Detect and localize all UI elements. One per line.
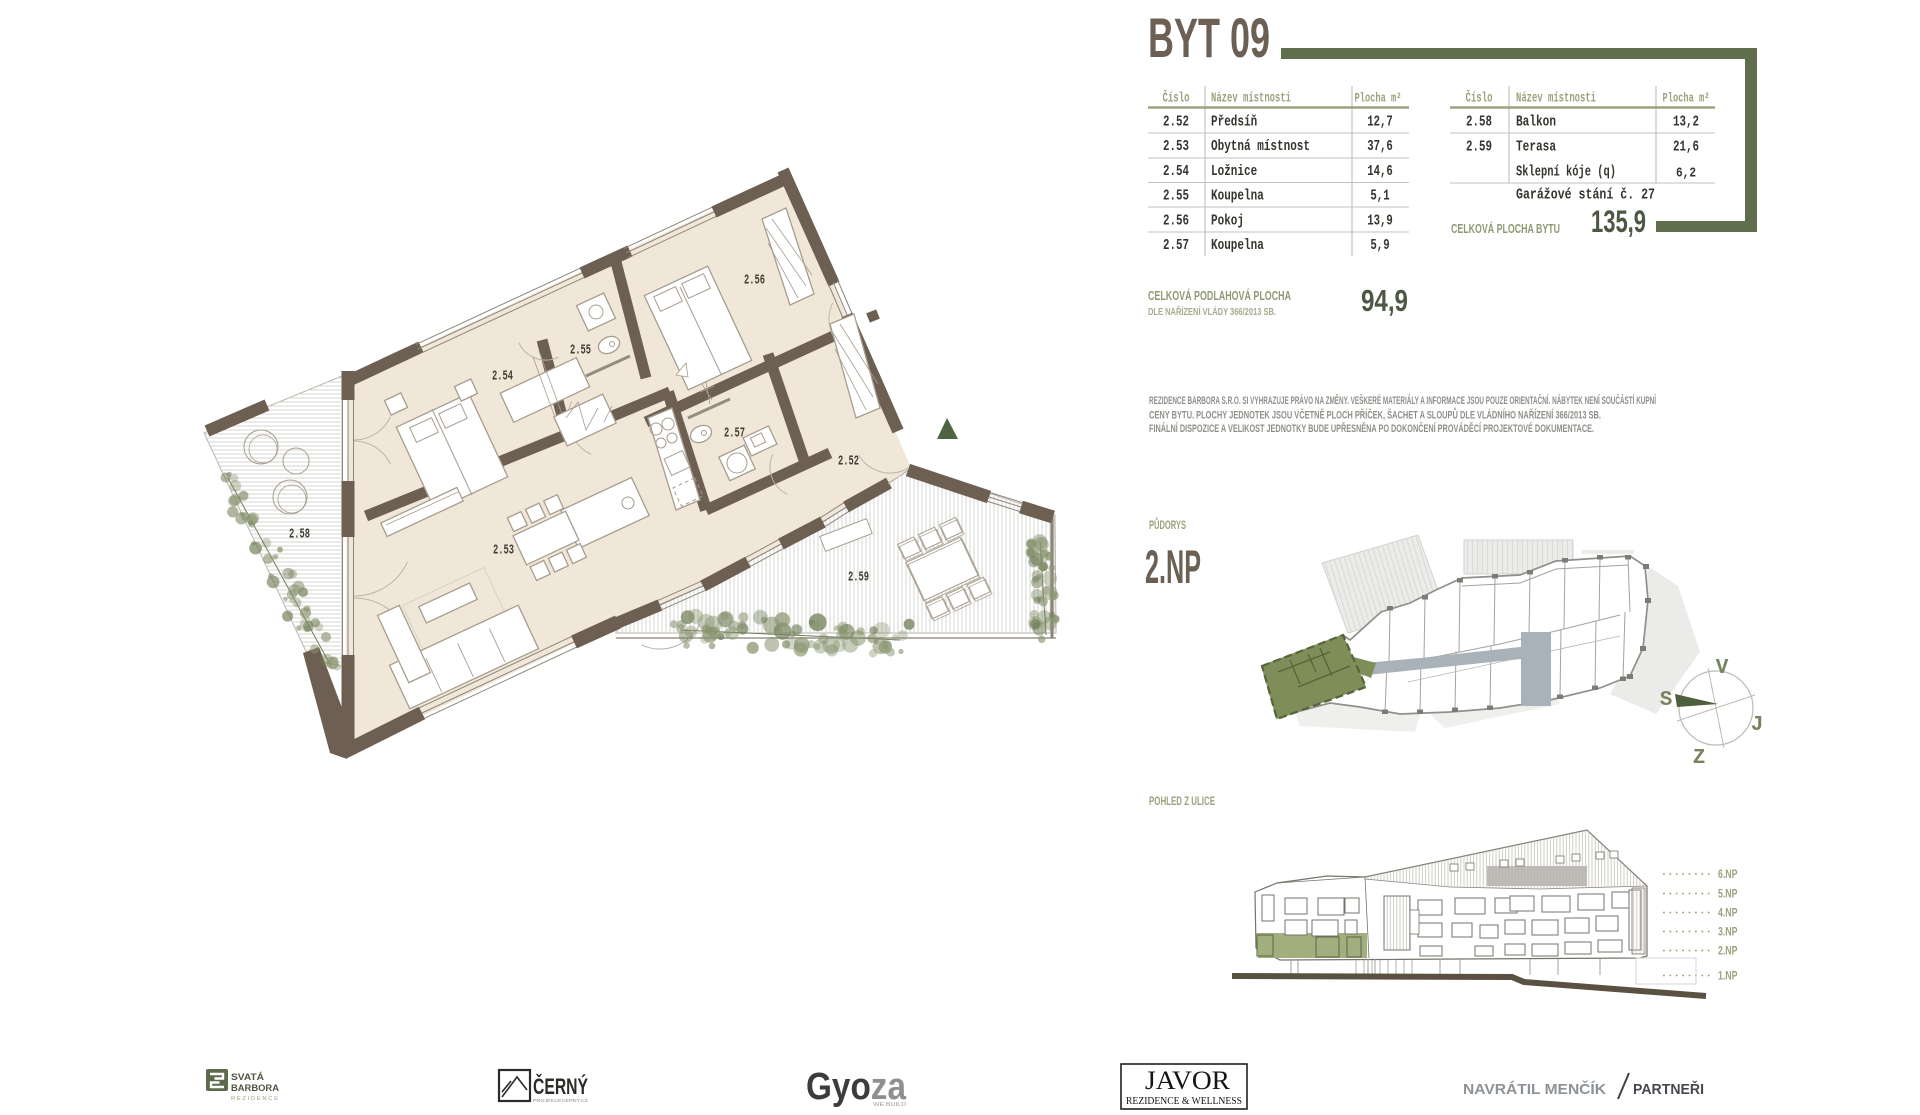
svg-text:135,9: 135,9 <box>1591 203 1646 239</box>
svg-text:BYT 09: BYT 09 <box>1148 6 1270 69</box>
svg-text:Obytná místnost: Obytná místnost <box>1211 138 1310 155</box>
svg-text:CELKOVÁ PODLAHOVÁ PLOCHA: CELKOVÁ PODLAHOVÁ PLOCHA <box>1148 288 1291 303</box>
svg-text:Z: Z <box>1693 747 1706 770</box>
svg-text:Plocha m²: Plocha m² <box>1355 91 1402 106</box>
svg-text:SVATÁ: SVATÁ <box>231 1072 264 1083</box>
svg-text:2.NP: 2.NP <box>1718 946 1738 958</box>
svg-text:Číslo: Číslo <box>1163 89 1190 107</box>
svg-text:2.58: 2.58 <box>289 527 310 543</box>
svg-text:13,9: 13,9 <box>1367 212 1393 229</box>
svg-text:2.59: 2.59 <box>1466 139 1492 156</box>
svg-text:2.53: 2.53 <box>1163 138 1189 155</box>
svg-text:Ložnice: Ložnice <box>1211 163 1257 180</box>
svg-text:Plocha m²: Plocha m² <box>1663 91 1710 106</box>
svg-text:14,6: 14,6 <box>1367 163 1393 180</box>
svg-text:2.59: 2.59 <box>848 570 869 586</box>
svg-text:S: S <box>1660 689 1673 712</box>
svg-text:Terasa: Terasa <box>1516 139 1556 156</box>
svg-text:1.NP: 1.NP <box>1718 971 1738 983</box>
svg-text:R E Z I D E N C E: R E Z I D E N C E <box>231 1096 279 1102</box>
svg-text:3.NP: 3.NP <box>1718 927 1738 939</box>
svg-text:2.56: 2.56 <box>1163 212 1189 229</box>
svg-text:JAVOR: JAVOR <box>1145 1066 1231 1095</box>
svg-text:REZIDENCE BARBORA S.R.O. SI VY: REZIDENCE BARBORA S.R.O. SI VYHRAZUJE PR… <box>1149 394 1657 407</box>
svg-text:PARTNEŘI: PARTNEŘI <box>1633 1080 1704 1098</box>
svg-text:Koupelna: Koupelna <box>1211 188 1264 205</box>
svg-text:21,6: 21,6 <box>1673 139 1699 156</box>
svg-text:Sklepní kóje (q): Sklepní kóje (q) <box>1516 164 1616 181</box>
svg-text:DLE NAŘÍZENÍ VLÁDY 366/2013 SB: DLE NAŘÍZENÍ VLÁDY 366/2013 SB. <box>1148 306 1276 318</box>
svg-text:5.NP: 5.NP <box>1718 889 1738 901</box>
svg-text:5,9: 5,9 <box>1370 237 1389 254</box>
svg-text:2.55: 2.55 <box>1163 188 1189 205</box>
svg-text:Pokoj: Pokoj <box>1211 212 1244 229</box>
svg-text:J: J <box>1751 714 1764 737</box>
svg-text:2.57: 2.57 <box>1163 237 1189 254</box>
svg-text:CELKOVÁ PLOCHA BYTU: CELKOVÁ PLOCHA BYTU <box>1451 221 1560 236</box>
svg-text:FINÁLNÍ DISPOZICE A VELIKOST J: FINÁLNÍ DISPOZICE A VELIKOST JEDNOTKY BU… <box>1149 422 1594 435</box>
svg-text:2.58: 2.58 <box>1466 114 1492 131</box>
svg-text:V: V <box>1716 657 1729 680</box>
svg-text:2.57: 2.57 <box>724 426 745 442</box>
svg-text:Garážové stání č. 27: Garážové stání č. 27 <box>1516 187 1655 204</box>
svg-text:6.NP: 6.NP <box>1718 869 1738 881</box>
svg-text:Balkon: Balkon <box>1516 114 1556 131</box>
svg-text:2.54: 2.54 <box>492 369 513 385</box>
svg-text:WE BUILD: WE BUILD <box>873 1102 907 1108</box>
svg-text:PROJEKCECERNY.CZ: PROJEKCECERNY.CZ <box>533 1098 588 1104</box>
svg-text:6,2: 6,2 <box>1676 166 1696 182</box>
svg-text:2.54: 2.54 <box>1163 163 1189 180</box>
svg-text:13,2: 13,2 <box>1673 114 1699 131</box>
svg-text:Koupelna: Koupelna <box>1211 237 1264 254</box>
svg-text:2.55: 2.55 <box>570 343 591 359</box>
svg-text:POHLED Z ULICE: POHLED Z ULICE <box>1149 794 1215 808</box>
svg-text:4.NP: 4.NP <box>1718 908 1738 920</box>
svg-text:12,7: 12,7 <box>1367 114 1393 131</box>
svg-text:NAVRÁTIL MENČÍK: NAVRÁTIL MENČÍK <box>1463 1080 1606 1098</box>
svg-text:5,1: 5,1 <box>1370 188 1389 205</box>
svg-text:2.53: 2.53 <box>493 543 514 559</box>
svg-text:Název místnosti: Název místnosti <box>1211 91 1291 107</box>
svg-text:Číslo: Číslo <box>1466 89 1493 107</box>
svg-text:Název místnosti: Název místnosti <box>1516 91 1596 107</box>
svg-text:2.56: 2.56 <box>744 273 765 289</box>
svg-text:37,6: 37,6 <box>1367 138 1393 155</box>
svg-text:2.NP: 2.NP <box>1145 540 1201 593</box>
svg-text:ČERNÝ: ČERNÝ <box>533 1074 588 1099</box>
svg-text:2.52: 2.52 <box>1163 114 1189 131</box>
svg-text:REZIDENCE & WELLNESS: REZIDENCE & WELLNESS <box>1126 1096 1242 1107</box>
svg-text:2.52: 2.52 <box>838 454 859 470</box>
svg-text:Předsíň: Předsíň <box>1211 114 1257 131</box>
svg-text:CENY BYTU. PLOCHY JEDNOTEK JSO: CENY BYTU. PLOCHY JEDNOTEK JSOU VČETNĚ P… <box>1149 408 1601 422</box>
svg-text:BARBORA: BARBORA <box>231 1083 279 1094</box>
svg-text:PŮDORYS: PŮDORYS <box>1149 516 1186 532</box>
svg-text:94,9: 94,9 <box>1361 284 1408 318</box>
